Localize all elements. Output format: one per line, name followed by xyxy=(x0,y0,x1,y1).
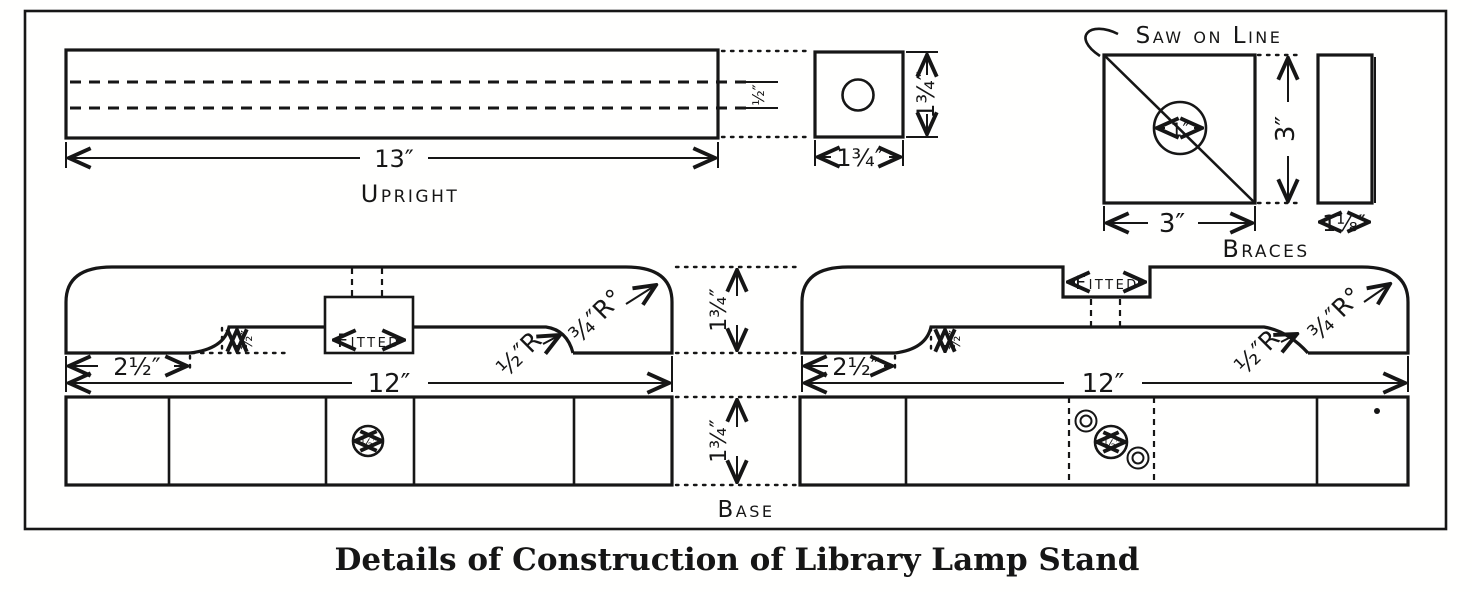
plate-border xyxy=(25,11,1446,529)
screw-hole-bottom xyxy=(1128,448,1149,469)
base-left-fillet-radius-label: ½″R xyxy=(491,326,548,383)
base-right-fitted-label: Fitted xyxy=(1075,272,1139,294)
base-title: Base xyxy=(718,497,775,523)
base-left-hole-dim-label: ½″ xyxy=(360,437,378,452)
upright-view: ½″ 13″ Upright xyxy=(66,50,812,208)
scanned-plate: ½″ 13″ Upright 1¾″ 1¾″ Saw on Line 1″ 3″ xyxy=(0,0,1472,592)
braces-view: Saw on Line 1″ 3″ 3″ 1⅛″ Braces xyxy=(1086,23,1375,263)
base-thickness-dim-label: 1¾″ xyxy=(707,288,732,332)
brace-height-dim-label: 3″ xyxy=(1271,116,1301,143)
upright-title: Upright xyxy=(361,180,459,208)
construction-drawing: ½″ 13″ Upright 1¾″ 1¾″ Saw on Line 1″ 3″ xyxy=(0,0,1472,592)
base-projection-lines xyxy=(676,267,798,485)
base-center-dimensions: 1¾″ 1¾″ xyxy=(676,267,798,485)
base-right-fitted-hidden-lines xyxy=(1091,299,1120,326)
ink-speck xyxy=(1374,408,1380,414)
base-right-plan-view: ½″ xyxy=(800,397,1408,485)
base-left-fitted-label: Fitted xyxy=(337,330,401,352)
screw-hole-top xyxy=(1076,411,1097,432)
upright-cord-hole xyxy=(843,80,874,111)
screw-hole-bottom-inner xyxy=(1133,453,1144,464)
base-right-hole-dim-label: ½″ xyxy=(1103,438,1121,453)
saw-on-line-note: Saw on Line xyxy=(1136,23,1283,49)
screw-hole-top-inner xyxy=(1081,416,1092,427)
upright-section-view: 1¾″ 1¾″ xyxy=(815,52,940,172)
base-left-fitted-hidden-lines xyxy=(352,268,382,296)
base-right-foot-dim-label: 2½″ xyxy=(832,353,880,381)
base-width-dim-label: 1¾″ xyxy=(707,419,732,463)
base-right-corner-radius-label: ¾″R° xyxy=(1302,281,1367,346)
base-left-foot-dim-label: 2½″ xyxy=(113,353,161,381)
brace-thickness-dim-label: 1⅛″ xyxy=(1322,212,1366,237)
upright-outline xyxy=(66,50,718,138)
base-right-relief-dim-label: ½″ xyxy=(946,330,964,351)
section-width-dim-label: 1¾″ xyxy=(836,144,884,172)
base-left-plan-view: ½″ xyxy=(66,397,672,485)
brace-hole-dim-label: 1″ xyxy=(1170,119,1189,141)
base-right-corner-radius-arrow xyxy=(1364,284,1390,302)
upright-section-outline xyxy=(815,52,903,137)
plate-caption: Details of Construction of Library Lamp … xyxy=(335,542,1140,578)
section-height-dim-label: 1¾″ xyxy=(912,71,940,119)
saw-note-leader-line xyxy=(1086,29,1118,56)
base-left-corner-radius-label: ¾″R° xyxy=(563,283,628,348)
base-left-corner-radius-arrow xyxy=(626,285,656,304)
base-left-fillet-radius-arrow xyxy=(543,335,560,344)
brace-width-dim-label: 3″ xyxy=(1159,209,1186,239)
base-right-length-dim-label: 12″ xyxy=(1082,369,1125,399)
upright-hole-dim-label: ½″ xyxy=(749,84,768,106)
base-right-side-view: Fitted ½″ 2½″ 12″ ¾″R° ½″R xyxy=(802,267,1408,399)
upright-hidden-hole-lines xyxy=(70,82,748,108)
base-left-length-dim-label: 12″ xyxy=(368,369,411,399)
base-left-side-view: Fitted ½″ 2½″ 12″ ¾″R° ½″R xyxy=(66,267,672,399)
braces-title: Braces xyxy=(1222,235,1309,263)
upright-length-dim-label: 13″ xyxy=(374,145,414,173)
brace-edge-outline xyxy=(1318,55,1372,203)
base-left-relief-dim-label: ½″ xyxy=(238,330,256,351)
